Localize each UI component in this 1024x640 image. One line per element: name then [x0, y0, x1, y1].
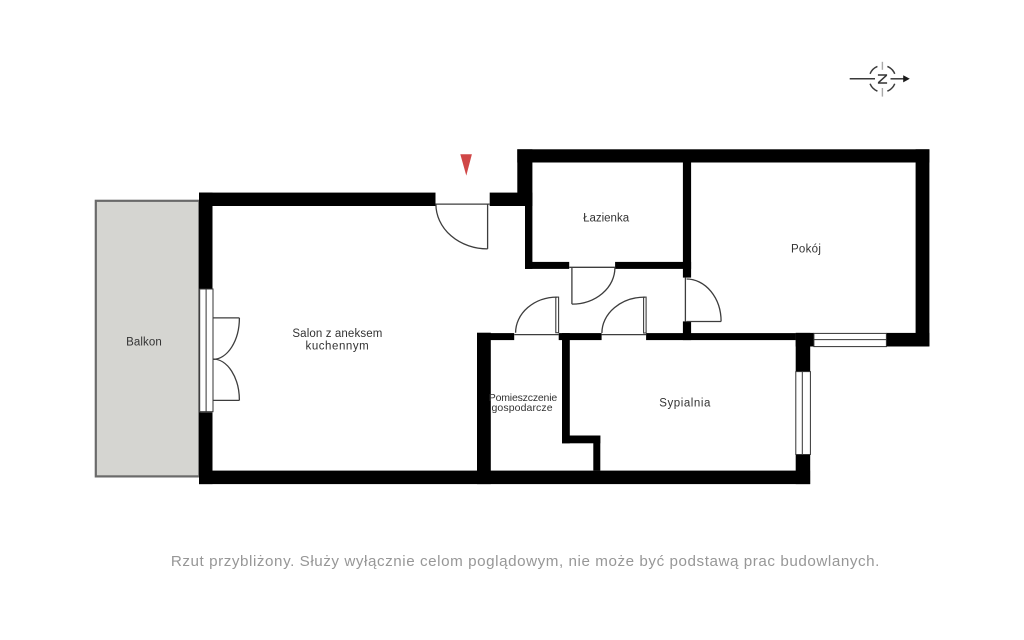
svg-text:kuchennym: kuchennym: [306, 340, 370, 352]
svg-text:gospodarcze: gospodarcze: [491, 402, 552, 414]
svg-text:Salon z aneksem: Salon z aneksem: [292, 328, 382, 340]
svg-text:Łazienka: Łazienka: [583, 213, 630, 225]
svg-text:Pokój: Pokój: [791, 244, 821, 256]
svg-text:Balkon: Balkon: [126, 337, 162, 349]
svg-text:Sypialnia: Sypialnia: [659, 397, 711, 409]
svg-text:Rzut przybliżony. Służy wyłącz: Rzut przybliżony. Służy wyłącznie celom …: [171, 553, 880, 570]
